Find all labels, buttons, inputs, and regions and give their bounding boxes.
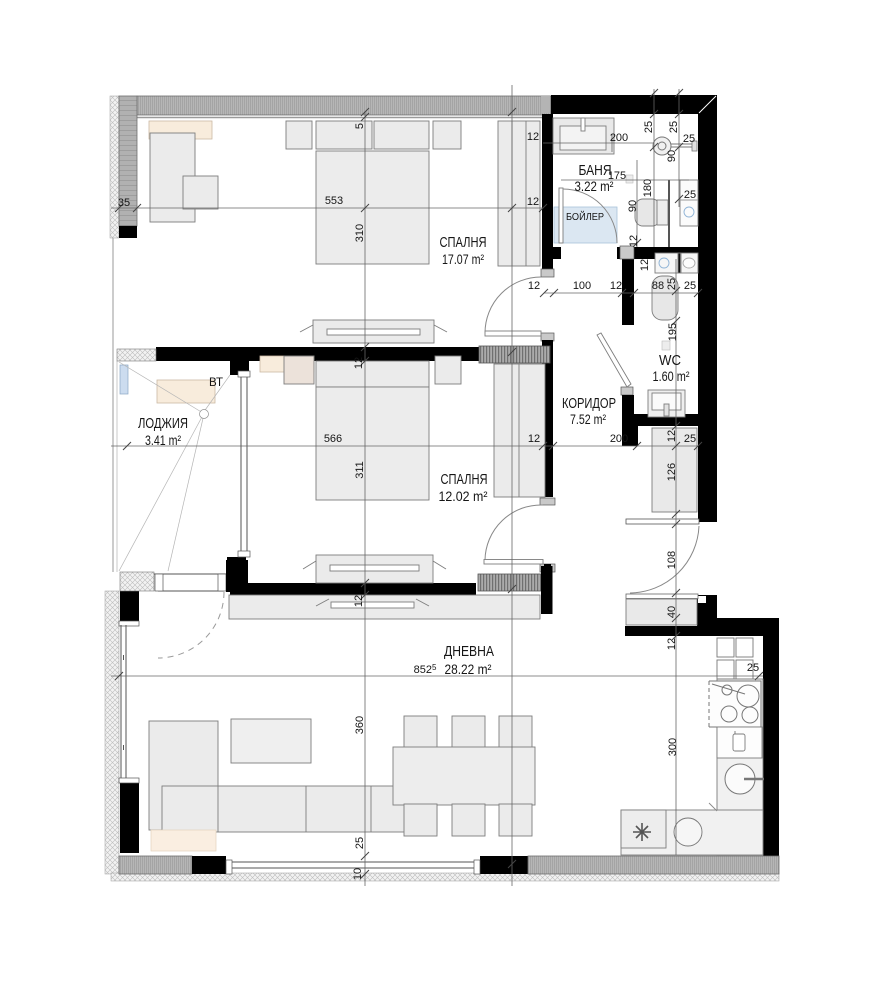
svg-text:25: 25 <box>668 121 680 133</box>
svg-text:БОЙЛЕР: БОЙЛЕР <box>566 210 604 223</box>
svg-text:88: 88 <box>652 280 664 292</box>
svg-text:200: 200 <box>610 433 628 445</box>
svg-text:12: 12 <box>353 595 365 607</box>
svg-text:108: 108 <box>666 551 678 569</box>
svg-text:12: 12 <box>666 430 678 442</box>
svg-text:12: 12 <box>610 280 622 292</box>
svg-text:12: 12 <box>639 259 651 271</box>
svg-text:12: 12 <box>628 235 640 247</box>
svg-text:1.60 m²: 1.60 m² <box>653 369 690 384</box>
svg-text:7.52 m²: 7.52 m² <box>570 412 606 427</box>
svg-text:25: 25 <box>683 133 695 145</box>
svg-text:БАНЯ: БАНЯ <box>579 162 612 179</box>
svg-text:566: 566 <box>324 433 342 445</box>
svg-text:12.02 m²: 12.02 m² <box>439 489 488 504</box>
svg-text:35: 35 <box>118 197 130 209</box>
svg-text:360: 360 <box>354 716 366 734</box>
svg-text:25: 25 <box>643 121 655 133</box>
svg-text:ДНЕВНА: ДНЕВНА <box>444 643 494 660</box>
svg-text:12: 12 <box>666 638 678 650</box>
svg-text:СПАЛНЯ: СПАЛНЯ <box>440 234 487 251</box>
svg-text:25: 25 <box>747 662 759 674</box>
svg-text:12: 12 <box>527 196 539 208</box>
svg-text:200: 200 <box>610 132 628 144</box>
svg-text:12: 12 <box>527 131 539 143</box>
svg-text:25: 25 <box>666 278 678 290</box>
svg-text:90: 90 <box>627 200 639 212</box>
svg-text:12: 12 <box>528 280 540 292</box>
svg-text:3.41 m²: 3.41 m² <box>145 433 181 448</box>
svg-text:300: 300 <box>667 738 679 756</box>
svg-text:12: 12 <box>353 357 365 369</box>
svg-text:28.22 m²: 28.22 m² <box>445 662 492 677</box>
svg-text:3.22 m²: 3.22 m² <box>575 179 614 194</box>
svg-text:КОРИДОР: КОРИДОР <box>562 395 616 412</box>
svg-text:WC: WC <box>659 352 681 369</box>
svg-text:25: 25 <box>684 280 696 292</box>
svg-text:СПАЛНЯ: СПАЛНЯ <box>441 471 488 488</box>
svg-text:10: 10 <box>352 868 364 880</box>
svg-text:90: 90 <box>666 150 678 162</box>
svg-text:ВТ: ВТ <box>209 375 224 389</box>
svg-text:12: 12 <box>528 433 540 445</box>
svg-text:25: 25 <box>354 837 366 849</box>
svg-text:311: 311 <box>354 461 366 479</box>
svg-text:5: 5 <box>354 123 366 129</box>
svg-text:17.07 m²: 17.07 m² <box>442 252 484 267</box>
svg-text:ЛОДЖИЯ: ЛОДЖИЯ <box>138 415 188 432</box>
svg-text:553: 553 <box>325 195 343 207</box>
svg-text:310: 310 <box>354 224 366 242</box>
svg-text:126: 126 <box>666 463 678 481</box>
svg-text:25: 25 <box>684 189 696 201</box>
svg-text:25: 25 <box>684 433 696 445</box>
svg-text:180: 180 <box>642 179 654 197</box>
svg-text:100: 100 <box>573 280 591 292</box>
svg-text:195: 195 <box>667 323 679 341</box>
svg-text:40: 40 <box>666 606 678 618</box>
